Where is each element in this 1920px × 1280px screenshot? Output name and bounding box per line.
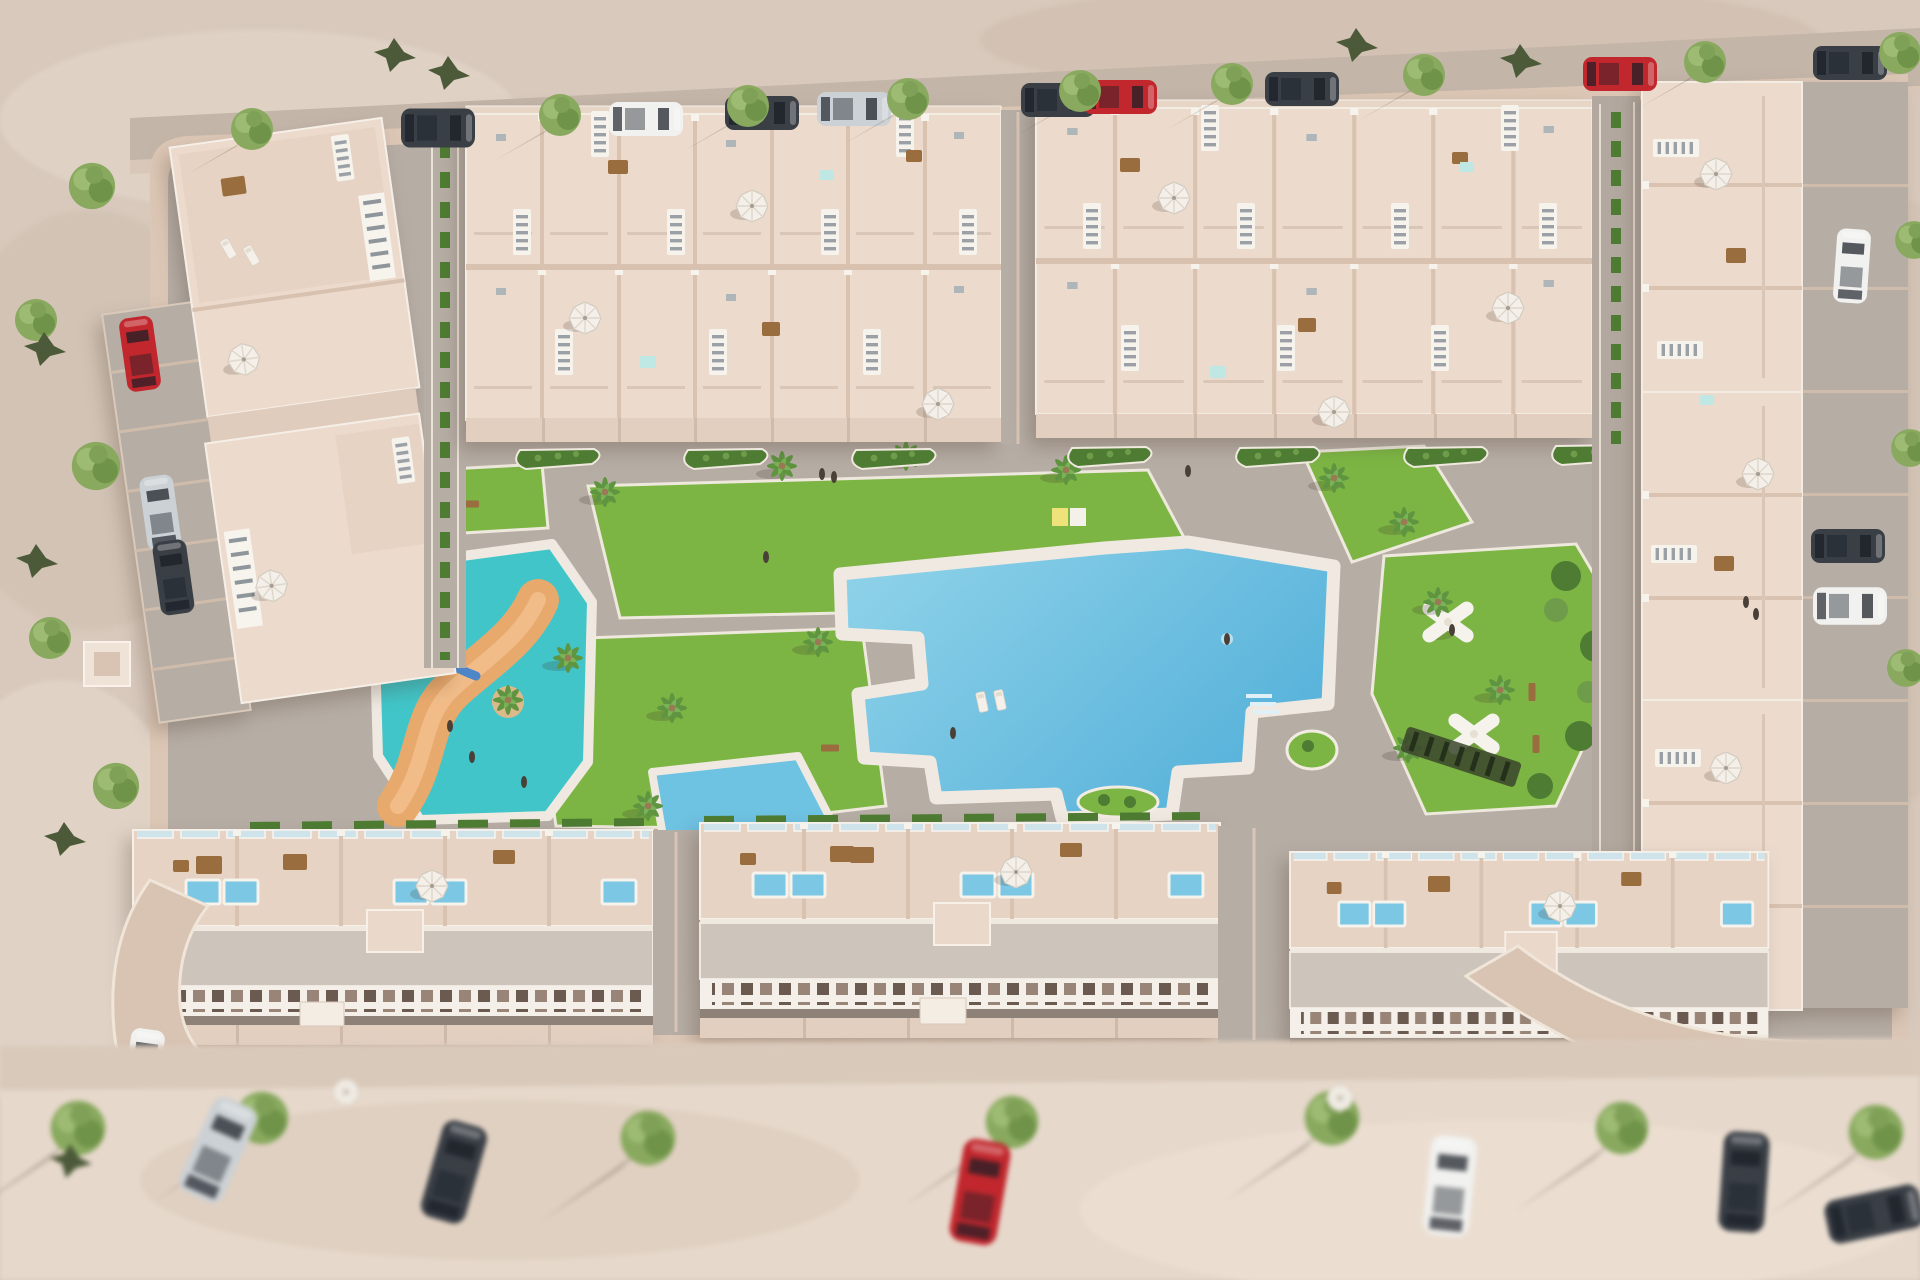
parasol xyxy=(922,388,954,420)
roof-stair-rail xyxy=(1657,341,1703,359)
skylight xyxy=(1460,162,1474,172)
roof-stair-rail xyxy=(1391,203,1409,249)
townhouse-block-2 xyxy=(1036,100,1592,438)
person xyxy=(1753,608,1759,620)
roof-stair-rail xyxy=(1651,545,1697,563)
entrance-portal xyxy=(300,1002,344,1026)
bottom-row-1 xyxy=(133,830,653,1045)
roof-stair-rail xyxy=(1653,139,1699,157)
parked-van-dark xyxy=(401,108,475,147)
hedge-alley-west xyxy=(424,128,466,668)
parasol xyxy=(569,302,601,334)
roof-furniture xyxy=(830,846,854,862)
parasol xyxy=(416,870,448,902)
roof-stair-rail xyxy=(1277,325,1295,371)
parked-car-black xyxy=(1811,529,1885,563)
parasol xyxy=(1710,752,1742,784)
alley-center xyxy=(1001,110,1036,444)
skylight xyxy=(1210,366,1226,378)
person xyxy=(1449,624,1455,636)
roof-stair-rail xyxy=(709,329,727,375)
parked-car-dark xyxy=(1813,46,1887,80)
pool-island-2 xyxy=(1287,731,1337,769)
parked-car-white xyxy=(1832,228,1871,304)
parasol xyxy=(1700,158,1732,190)
roof-stair-rail xyxy=(1655,749,1701,767)
entrance-portal xyxy=(920,998,966,1024)
roof-stair-rail xyxy=(555,329,573,375)
kid-figure xyxy=(447,720,453,732)
aerial-render-stage: Aerial 3D architectural rendering of a b… xyxy=(0,0,1920,1280)
townhouse-block-1 xyxy=(466,106,1001,442)
skylight xyxy=(820,170,834,180)
roof-terrace-b xyxy=(335,424,435,555)
roof-stair-rail xyxy=(863,329,881,375)
parasol xyxy=(1544,890,1576,922)
parasol xyxy=(1158,182,1190,214)
roof-stair-rail xyxy=(1201,105,1219,151)
roof-stair-rail xyxy=(821,209,839,255)
parasol xyxy=(1742,458,1774,490)
person xyxy=(819,468,825,480)
roof-stair-rail xyxy=(1237,203,1255,249)
block1-back-row xyxy=(466,114,1001,266)
skylight xyxy=(1700,395,1714,405)
roof-stair-rail xyxy=(1539,203,1557,249)
roof-table xyxy=(220,176,246,197)
parked-car-white xyxy=(609,102,683,136)
bottom-row-2 xyxy=(700,823,1220,1038)
patio-parasol xyxy=(332,1078,359,1105)
person xyxy=(1185,465,1191,477)
person xyxy=(1743,596,1749,608)
roof-stair-rail xyxy=(1431,325,1449,371)
parasol xyxy=(736,190,768,222)
garden-bench xyxy=(1529,683,1536,701)
gate-kiosk-roof xyxy=(94,652,120,676)
person xyxy=(763,551,769,563)
bench xyxy=(821,745,839,752)
block2-front-row xyxy=(1036,262,1592,414)
roof-stair-rail xyxy=(1121,325,1139,371)
parasol xyxy=(1318,396,1350,428)
parked-van-white xyxy=(1813,587,1887,624)
person xyxy=(950,727,956,739)
patio-parasol xyxy=(1326,1084,1353,1111)
roof-furniture xyxy=(196,856,222,874)
parasol xyxy=(1492,292,1524,324)
parked-car-dark xyxy=(1265,72,1339,106)
block1-patios xyxy=(466,418,1001,442)
garden-bench xyxy=(1533,735,1540,753)
roof-stair-rail xyxy=(513,209,531,255)
parked-car-silver xyxy=(817,92,891,126)
kid-figure xyxy=(521,776,527,788)
person xyxy=(831,471,837,483)
roof-stair-rail xyxy=(1501,105,1519,151)
block1-front-row xyxy=(466,268,1001,420)
roof-stair-rail xyxy=(591,111,609,157)
skylight xyxy=(640,356,656,368)
parked-car-red xyxy=(1583,57,1657,91)
kid-figure xyxy=(469,751,475,763)
swimmer xyxy=(1224,633,1230,645)
parasol xyxy=(1000,856,1032,888)
roof-stair-rail xyxy=(1083,203,1101,249)
parked-car-dark xyxy=(1718,1131,1771,1234)
roof-stair-rail xyxy=(667,209,685,255)
aerial-render: Aerial 3D architectural rendering of a b… xyxy=(0,0,1920,1280)
foreground-street xyxy=(0,1038,1920,1280)
driveway-gap-1 xyxy=(653,830,700,1035)
roof-stair-rail xyxy=(959,209,977,255)
